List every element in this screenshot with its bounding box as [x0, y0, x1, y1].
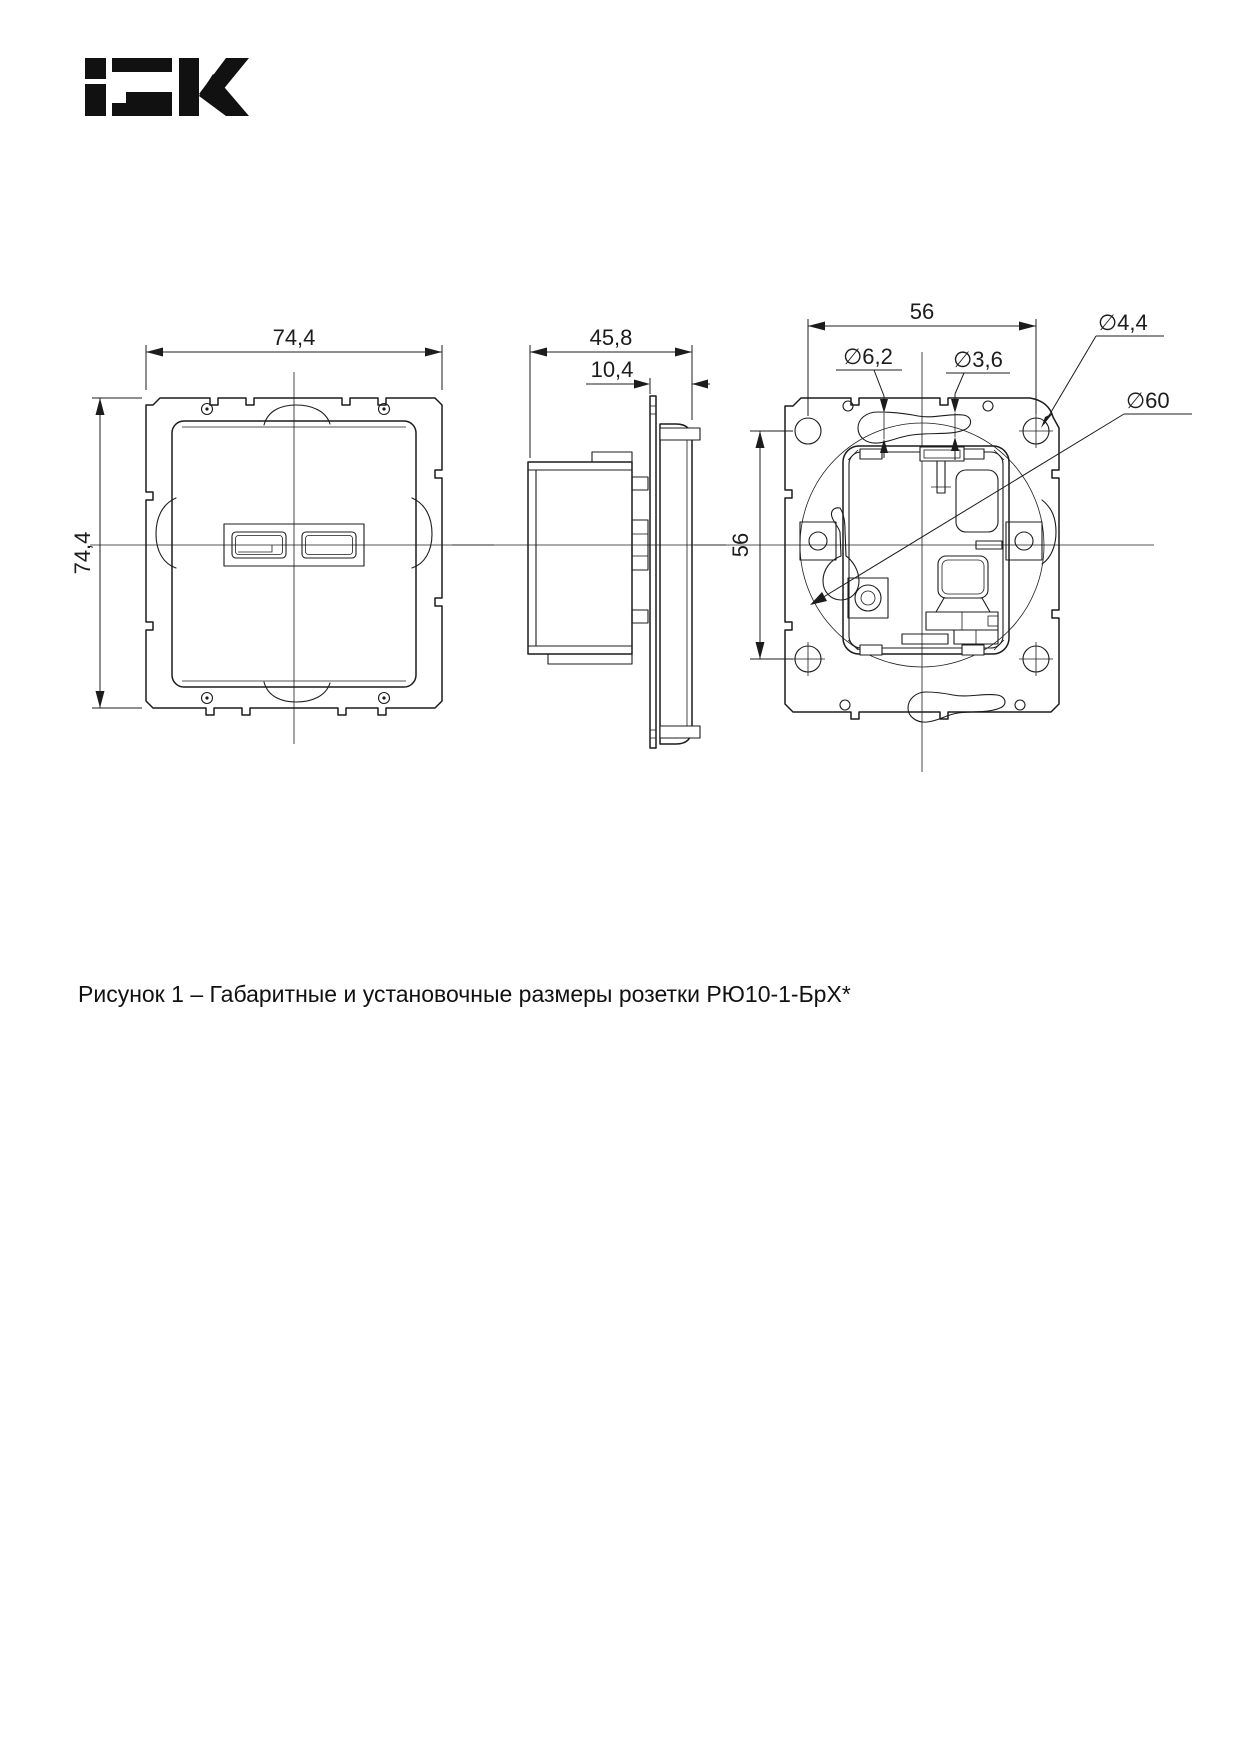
mechanism-screw-terminal — [848, 578, 888, 618]
mechanism-terminal — [926, 556, 998, 630]
rear-view: 56 56 ∅6,2 ∅3,6 — [694, 299, 1192, 772]
logo-i-stem — [85, 84, 106, 116]
rear-claw-tabs — [800, 500, 1056, 564]
side-support-flange — [650, 396, 656, 748]
front-dim-height: 74,4 — [70, 398, 142, 708]
front-height-label: 74,4 — [70, 532, 95, 575]
iek-logo — [85, 58, 249, 116]
install-dia-label: ∅60 — [1126, 388, 1170, 413]
front-view: 74,4 74,4 — [70, 325, 494, 744]
slot-large-dia-label: ∅6,2 — [843, 344, 893, 369]
side-depth-label: 45,8 — [590, 325, 633, 350]
logo-k-stem — [179, 58, 199, 116]
figure-canvas: 74,4 74,4 — [0, 0, 1244, 1748]
rear-mechanism-housing — [843, 446, 1009, 655]
rear-dim-slot-small: ∅3,6 — [946, 347, 1010, 460]
side-front-depth-label: 10,4 — [591, 357, 634, 382]
rear-spacing-h-label: 56 — [910, 299, 934, 324]
side-view: 45,8 10,4 — [452, 325, 726, 748]
figure-caption: Рисунок 1 – Габаритные и установочные ра… — [78, 981, 851, 1008]
side-dim-front-depth: 10,4 — [586, 357, 710, 394]
logo-e-top — [112, 58, 172, 72]
rear-spacing-v-label: 56 — [728, 533, 753, 557]
side-mechanism-box — [528, 452, 648, 664]
front-screw-holes — [202, 404, 390, 704]
logo-e-bottom — [112, 103, 172, 116]
logo-e-mid — [126, 92, 172, 103]
usb-port-left-tongue — [238, 545, 272, 552]
rear-dim-install: ∅60 — [810, 388, 1192, 605]
keyhole-slot-bottom — [908, 692, 1005, 722]
corner-hole-dia-label: ∅4,4 — [1098, 310, 1148, 335]
slot-small-dia-label: ∅3,6 — [953, 347, 1003, 372]
side-cover-plate — [660, 424, 700, 744]
logo-i-dot — [85, 58, 106, 79]
document-page: 74,4 74,4 — [0, 0, 1244, 1748]
mechanism-window — [956, 470, 998, 532]
front-width-label: 74,4 — [273, 325, 316, 350]
